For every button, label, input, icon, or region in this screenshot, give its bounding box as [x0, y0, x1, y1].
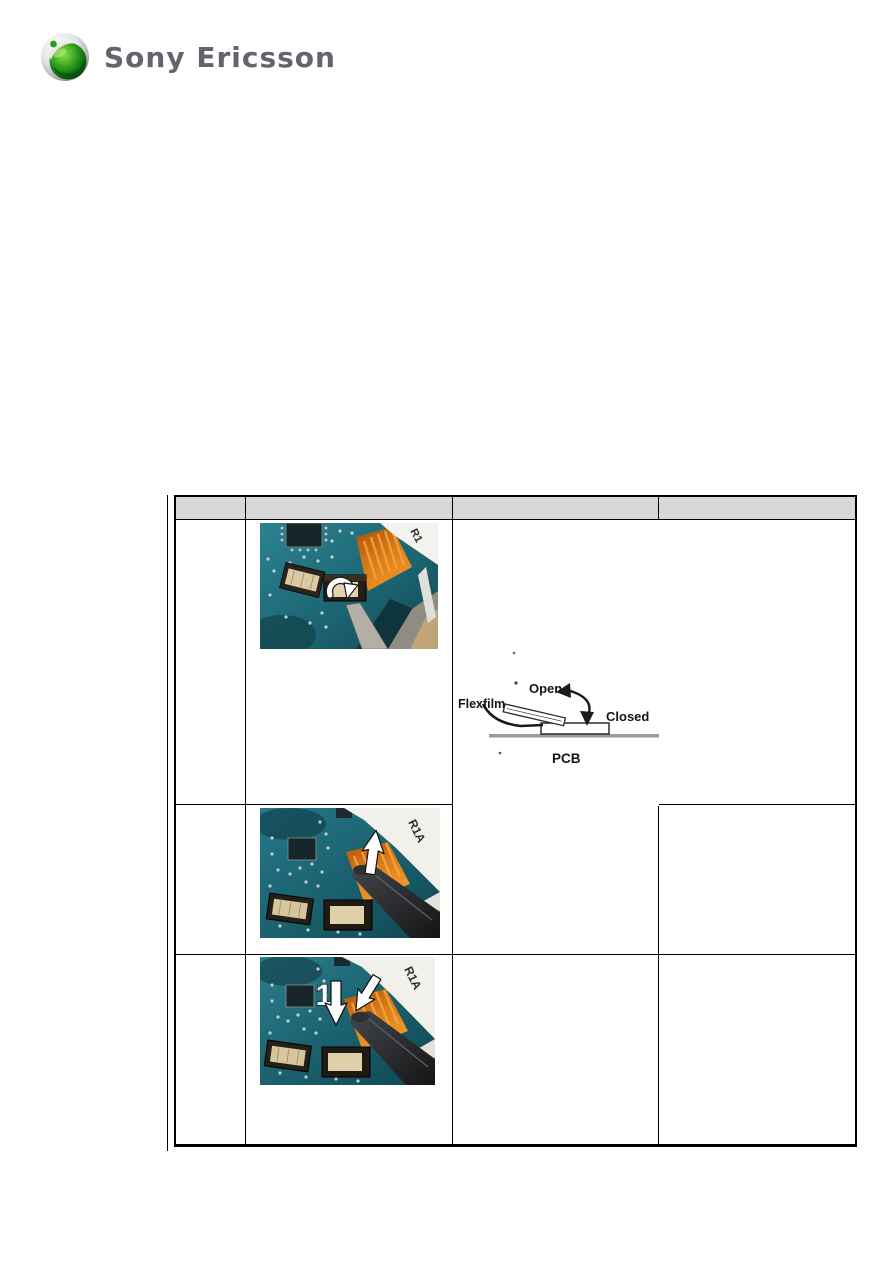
row1-photo-cell: R1	[245, 520, 452, 805]
table-left-rule	[167, 495, 168, 1151]
row2-note-cell	[658, 805, 856, 955]
row2-figure-cell	[452, 805, 658, 955]
brand-wordmark: Sony Ericsson	[104, 41, 336, 74]
board-socket	[264, 1040, 311, 1072]
row1-figure-cell: Flexfilm Open Closed PCB	[452, 520, 658, 805]
connector-closed-rect	[541, 723, 609, 734]
diagram-label-pcb: PCB	[552, 751, 581, 766]
ic-chip	[286, 523, 322, 547]
ic-chip	[286, 985, 314, 1007]
row3-step-cell	[175, 955, 245, 1146]
fpc-connector	[322, 1047, 370, 1077]
connector-open-closed-diagram: Flexfilm Open Closed PCB	[453, 520, 659, 806]
table-row-2: R1A	[175, 805, 856, 955]
pcb-photo-press-latch: R1A 1	[260, 957, 435, 1085]
sony-ericsson-sphere-icon	[40, 32, 90, 82]
speck	[498, 752, 501, 755]
table-header-row	[175, 496, 856, 520]
diagram-label-closed: Closed	[606, 709, 649, 724]
document-page: Sony Ericsson	[0, 0, 893, 1263]
row2-photo-cell: R1A	[245, 805, 452, 955]
row1-step-cell	[175, 520, 245, 805]
header-cell-1	[175, 496, 245, 520]
row2-step-cell	[175, 805, 245, 955]
table-row-3: R1A 1	[175, 955, 856, 1146]
ic-chip	[288, 838, 316, 860]
row3-photo-cell: R1A 1	[245, 955, 452, 1146]
header-cell-2	[245, 496, 452, 520]
sony-ericsson-logo: Sony Ericsson	[40, 32, 336, 82]
procedure-table: R1	[174, 495, 857, 1147]
speck	[514, 681, 517, 684]
board-socket	[266, 893, 313, 925]
pcb-photo-flexfilm-removal: R1A	[260, 808, 440, 938]
row3-note-cell	[658, 955, 856, 1146]
header-cell-4	[658, 496, 856, 520]
diagram-label-open: Open	[529, 681, 562, 696]
pcb-photo-connector-latch-open: R1	[260, 523, 438, 649]
diagram-label-flexfilm: Flexfilm	[458, 697, 505, 711]
procedure-table-container: R1	[174, 495, 857, 1147]
speck	[512, 652, 515, 655]
row1-note-cell	[658, 520, 856, 805]
header-cell-3	[452, 496, 658, 520]
row3-figure-cell	[452, 955, 658, 1146]
table-row-1: R1	[175, 520, 856, 805]
fpc-connector	[324, 900, 372, 930]
